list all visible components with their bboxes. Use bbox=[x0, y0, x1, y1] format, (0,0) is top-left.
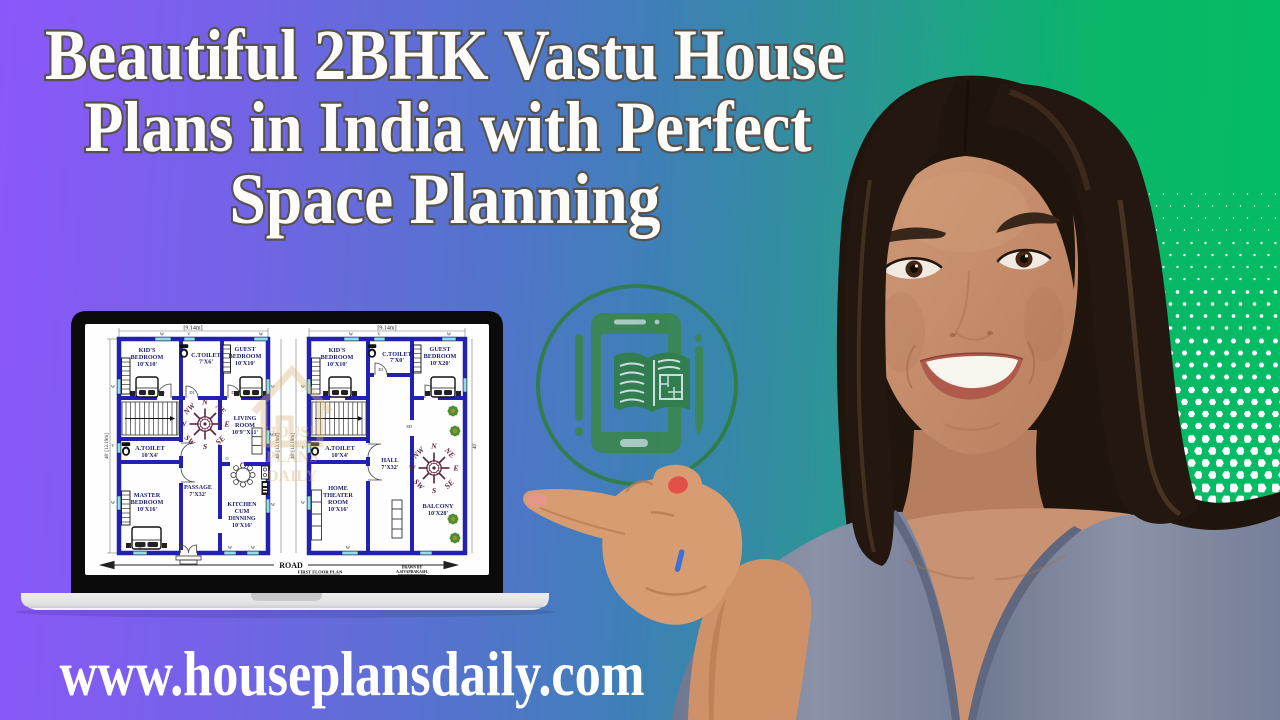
svg-text:10'X20': 10'X20' bbox=[430, 360, 451, 367]
svg-text:A.TOILET: A.TOILET bbox=[325, 445, 356, 452]
svg-text:D: D bbox=[334, 390, 337, 395]
svg-text:10'X10': 10'X10' bbox=[235, 360, 256, 367]
svg-text:10'X4': 10'X4' bbox=[141, 452, 158, 459]
svg-text:BEDROOM: BEDROOM bbox=[131, 354, 164, 361]
svg-text:Space Planning: Space Planning bbox=[230, 159, 661, 239]
svg-text:E: E bbox=[452, 464, 458, 473]
svg-text:www.houseplansdaily.com: www.houseplansdaily.com bbox=[60, 638, 645, 709]
svg-text:HOME: HOME bbox=[328, 485, 348, 492]
svg-text:BEDROOM: BEDROOM bbox=[424, 353, 457, 360]
svg-text:O: O bbox=[225, 456, 228, 461]
svg-text:KID'S: KID'S bbox=[329, 347, 346, 354]
svg-text:HALL: HALL bbox=[381, 457, 399, 464]
svg-text:D1: D1 bbox=[378, 367, 383, 372]
svg-text:BEDROOM: BEDROOM bbox=[131, 499, 164, 506]
svg-text:DRAWN BY: DRAWN BY bbox=[402, 566, 423, 570]
svg-text:D1: D1 bbox=[189, 390, 194, 395]
svg-text:BEDROOM: BEDROOM bbox=[321, 354, 354, 361]
svg-text:40': 40' bbox=[473, 443, 478, 449]
svg-text:ROOM: ROOM bbox=[328, 499, 348, 506]
svg-text:10'9"X11': 10'9"X11' bbox=[232, 429, 259, 436]
svg-text:KITCHEN: KITCHEN bbox=[227, 501, 257, 508]
svg-text:E: E bbox=[223, 420, 229, 429]
svg-text:[9.14m]: [9.14m] bbox=[183, 326, 202, 332]
svg-text:MASTER: MASTER bbox=[134, 492, 161, 499]
svg-text:S: S bbox=[432, 486, 437, 495]
svg-text:BALCONY: BALCONY bbox=[423, 503, 454, 510]
svg-text:N: N bbox=[430, 442, 437, 451]
svg-text:A.TOILET: A.TOILET bbox=[135, 445, 166, 452]
svg-text:ROOM: ROOM bbox=[235, 422, 255, 429]
svg-text:W: W bbox=[180, 420, 188, 429]
svg-text:40' [12.19m]: 40' [12.19m] bbox=[105, 433, 110, 459]
svg-text:SD: SD bbox=[406, 424, 412, 429]
svg-text:DINNING: DINNING bbox=[228, 515, 256, 522]
svg-text:7'X6': 7'X6' bbox=[199, 359, 213, 366]
svg-text:10'X10': 10'X10' bbox=[137, 361, 158, 368]
svg-text:LIVING: LIVING bbox=[234, 415, 257, 422]
svg-text:10'X10': 10'X10' bbox=[327, 361, 348, 368]
svg-text:GUEST: GUEST bbox=[235, 346, 257, 353]
svg-text:CUM: CUM bbox=[235, 508, 250, 515]
svg-text:Beautiful 2BHK Vastu House: Beautiful 2BHK Vastu House bbox=[45, 15, 845, 95]
svg-text:DAILY: DAILY bbox=[267, 468, 318, 485]
svg-text:7'X32': 7'X32' bbox=[189, 491, 206, 498]
svg-text:D: D bbox=[231, 390, 234, 395]
svg-text:10'X16': 10'X16' bbox=[137, 506, 158, 513]
svg-text:HOUSE: HOUSE bbox=[264, 424, 320, 441]
svg-text:GUEST: GUEST bbox=[430, 346, 452, 353]
svg-text:10'X16': 10'X16' bbox=[232, 522, 253, 529]
svg-text:D: D bbox=[428, 390, 431, 395]
svg-text:N: N bbox=[201, 398, 208, 407]
svg-text:10'X4': 10'X4' bbox=[331, 452, 348, 459]
svg-text:D: D bbox=[161, 390, 164, 395]
svg-text:ROAD: ROAD bbox=[279, 561, 303, 570]
svg-text:Plans in India with Perfect: Plans in India with Perfect bbox=[85, 87, 812, 167]
svg-text:W: W bbox=[409, 464, 417, 473]
svg-text:PLANS: PLANS bbox=[266, 449, 319, 466]
svg-text:KID'S: KID'S bbox=[139, 347, 156, 354]
svg-text:7'X32': 7'X32' bbox=[381, 464, 398, 471]
svg-text:10'X16': 10'X16' bbox=[328, 506, 349, 513]
svg-text:THEATER: THEATER bbox=[323, 492, 353, 499]
svg-text:A.SIVAPRAKASH.: A.SIVAPRAKASH. bbox=[396, 570, 428, 574]
svg-text:10'X28': 10'X28' bbox=[428, 510, 449, 517]
svg-text:FIRST FLOOR PLAN: FIRST FLOOR PLAN bbox=[298, 570, 343, 575]
svg-text:S: S bbox=[203, 442, 208, 451]
svg-text:BEDROOM: BEDROOM bbox=[229, 353, 262, 360]
svg-text:7'X0': 7'X0' bbox=[390, 357, 404, 364]
svg-text:PASSAGE: PASSAGE bbox=[184, 484, 212, 491]
